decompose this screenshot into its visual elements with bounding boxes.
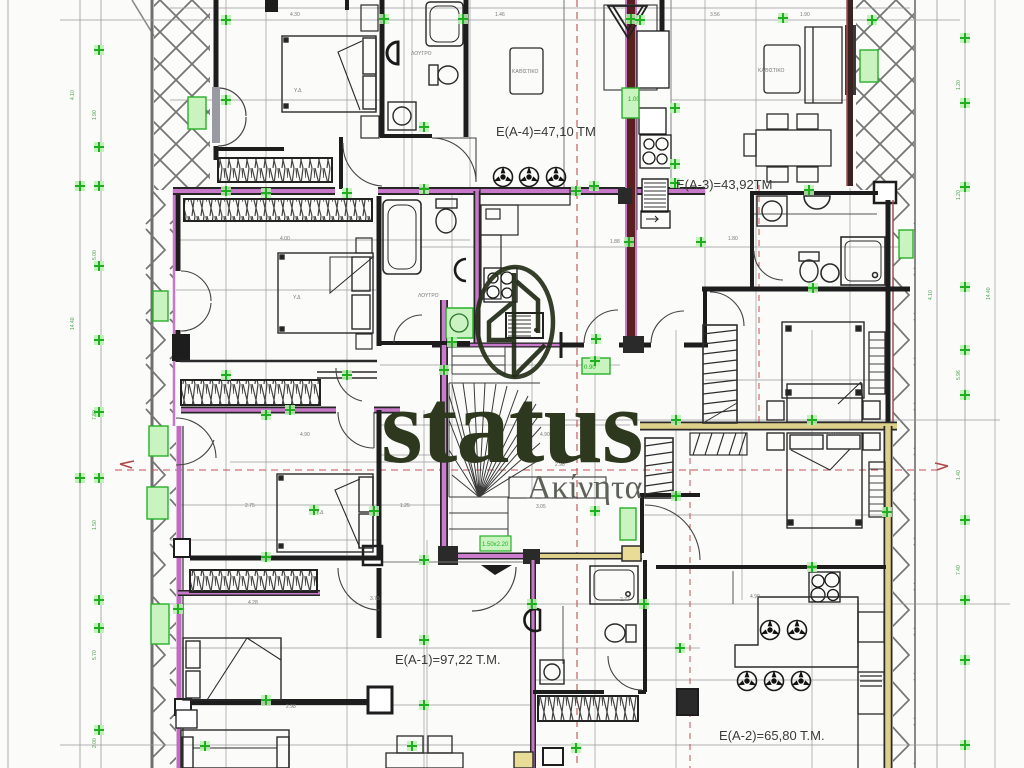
svg-text:2.00: 2.00 (92, 738, 98, 748)
svg-text:E(A-1)=97,22 T.M.: E(A-1)=97,22 T.M. (395, 652, 501, 667)
svg-text:4.00: 4.00 (280, 236, 290, 242)
svg-text:1.20: 1.20 (956, 190, 962, 200)
svg-text:14.40: 14.40 (70, 317, 76, 330)
svg-text:1.46: 1.46 (495, 12, 505, 18)
svg-text:2.77: 2.77 (620, 597, 630, 603)
svg-text:4.10: 4.10 (70, 90, 76, 100)
svg-text:1.40: 1.40 (956, 470, 962, 480)
svg-text:E(A-3)=43,92TM: E(A-3)=43,92TM (676, 177, 772, 192)
svg-text:4.90: 4.90 (300, 432, 310, 438)
svg-text:4.30: 4.30 (290, 12, 300, 18)
svg-text:Ακίνητα: Ακίνητα (527, 469, 643, 506)
svg-text:3.10: 3.10 (826, 432, 836, 438)
svg-text:1.00: 1.00 (628, 97, 640, 103)
svg-text:1.90: 1.90 (92, 110, 98, 120)
svg-text:7.40: 7.40 (956, 565, 962, 575)
svg-text:1.88: 1.88 (610, 239, 620, 245)
svg-text:1.25: 1.25 (400, 503, 410, 509)
svg-text:2.98: 2.98 (286, 704, 296, 710)
svg-text:7.80: 7.80 (92, 410, 98, 420)
svg-text:3.75: 3.75 (370, 596, 380, 602)
svg-text:Υ.Δ: Υ.Δ (316, 510, 324, 516)
svg-text:1.20: 1.20 (956, 80, 962, 90)
svg-text:Υ.Δ: Υ.Δ (293, 295, 301, 301)
svg-text:Υ.Δ: Υ.Δ (294, 88, 302, 94)
svg-text:1.50: 1.50 (92, 520, 98, 530)
svg-text:14.40: 14.40 (986, 287, 992, 300)
svg-text:5.70: 5.70 (92, 650, 98, 660)
svg-text:1.90: 1.90 (800, 12, 810, 18)
svg-text:5.96: 5.96 (956, 370, 962, 380)
svg-text:5.00: 5.00 (92, 250, 98, 260)
svg-text:4.90: 4.90 (750, 594, 760, 600)
svg-text:E(A-2)=65,80 T.M.: E(A-2)=65,80 T.M. (719, 728, 825, 743)
svg-text:ΚΑΘΙΣΤΙΚΟ: ΚΑΘΙΣΤΙΚΟ (758, 68, 785, 74)
svg-text:ΛΟΥΤΡΟ: ΛΟΥΤΡΟ (418, 293, 439, 299)
svg-text:4.28: 4.28 (248, 600, 258, 606)
svg-text:ΛΟΥΤΡΟ: ΛΟΥΤΡΟ (411, 51, 432, 57)
svg-text:4.10: 4.10 (928, 290, 934, 300)
svg-text:E(A-4)=47,10 TM: E(A-4)=47,10 TM (496, 124, 596, 139)
svg-text:ΚΑΘΙΣΤΙΚΟ: ΚΑΘΙΣΤΙΚΟ (512, 69, 539, 75)
svg-text:1.80: 1.80 (728, 236, 738, 242)
svg-text:2.75: 2.75 (245, 503, 255, 509)
svg-text:3.56: 3.56 (710, 12, 720, 18)
svg-text:1.50x2.20: 1.50x2.20 (482, 542, 509, 548)
